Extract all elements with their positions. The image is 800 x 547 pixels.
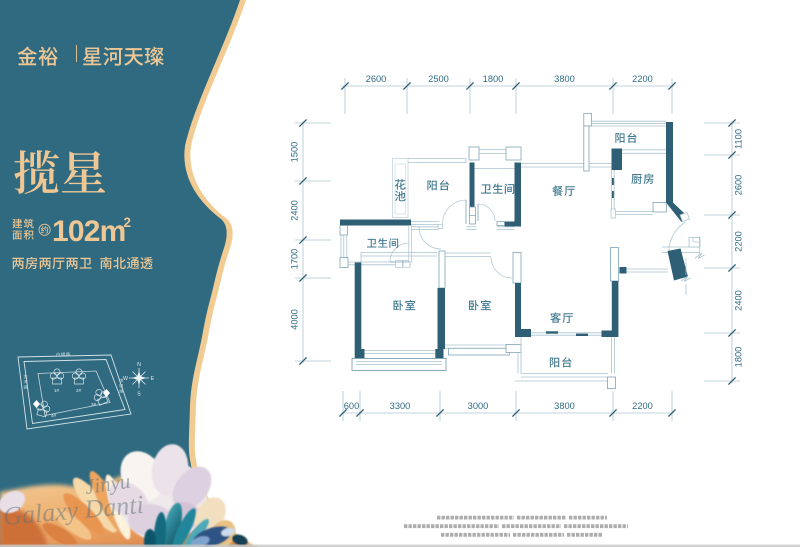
svg-text:2200: 2200 <box>734 231 744 252</box>
svg-text:2200: 2200 <box>632 74 653 84</box>
svg-text:600: 600 <box>344 401 360 411</box>
svg-text:2600: 2600 <box>734 175 744 196</box>
svg-text:4#: 4# <box>51 413 57 418</box>
svg-text:1800: 1800 <box>483 74 504 84</box>
svg-text:3#: 3# <box>91 402 97 407</box>
svg-text:2: 2 <box>124 215 132 230</box>
svg-text:2200: 2200 <box>632 401 653 411</box>
svg-text:1#: 1# <box>54 388 60 393</box>
svg-text:4000: 4000 <box>290 309 300 330</box>
svg-text:1500: 1500 <box>290 142 300 163</box>
svg-text:3000: 3000 <box>468 401 489 411</box>
svg-text:2500: 2500 <box>428 74 449 84</box>
svg-text:S: S <box>137 392 141 398</box>
svg-text:102m: 102m <box>52 215 126 248</box>
svg-text:W: W <box>123 376 128 382</box>
svg-text:2600: 2600 <box>366 74 387 84</box>
svg-text:2400: 2400 <box>290 200 300 221</box>
svg-text:1800: 1800 <box>734 347 744 368</box>
svg-text:2#: 2# <box>76 388 82 393</box>
svg-text:1700: 1700 <box>290 249 300 270</box>
svg-text:3800: 3800 <box>554 74 575 84</box>
svg-text:N: N <box>137 362 141 368</box>
svg-text:2400: 2400 <box>734 290 744 311</box>
svg-text:E: E <box>151 376 155 382</box>
svg-text:3300: 3300 <box>390 401 411 411</box>
svg-text:1100: 1100 <box>734 129 744 149</box>
svg-text:3800: 3800 <box>554 401 575 411</box>
